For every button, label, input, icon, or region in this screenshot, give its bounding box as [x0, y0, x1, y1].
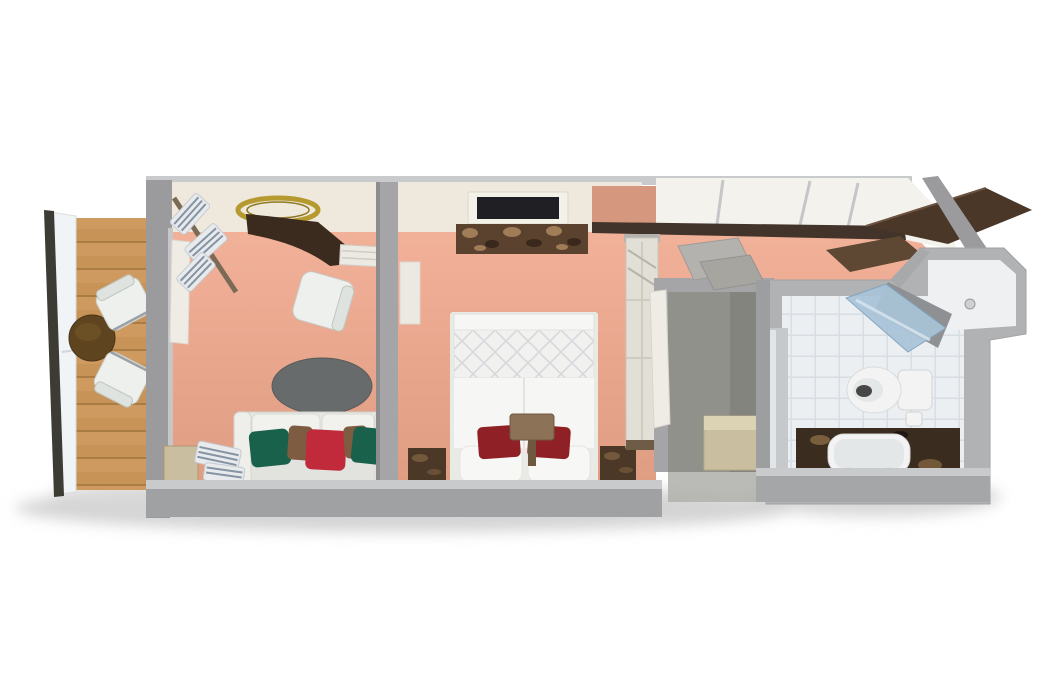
tv-screen: [477, 197, 559, 219]
quilted-duvet: [454, 330, 594, 378]
double-bed: [450, 312, 598, 484]
nightstand-body: [408, 448, 446, 482]
oval-rug: [272, 358, 372, 414]
balcony-table-highlight: [75, 323, 101, 341]
entry-door: [704, 416, 758, 470]
mirror-shine: [770, 330, 776, 468]
marble-streak: [412, 454, 428, 462]
headboard-panel: [510, 414, 554, 440]
wardrobe-base-trim: [626, 440, 658, 450]
duvet-fold: [454, 314, 594, 330]
toilet-tank: [898, 370, 932, 410]
marble-streak: [604, 452, 620, 460]
balcony-door: [170, 240, 190, 344]
sofa: [234, 412, 392, 486]
partition-white-panel: [400, 262, 420, 324]
bathtub-basin: [834, 439, 904, 469]
stone-dresser: [456, 224, 588, 254]
toilet-bowl-hole: [856, 385, 872, 397]
bathroom-south-wall-face: [756, 476, 990, 502]
nightstand-body: [600, 446, 636, 480]
south-wall: [146, 480, 662, 517]
marble-streak: [427, 469, 441, 475]
closet-open-door: [650, 290, 670, 428]
flush-button: [906, 412, 922, 426]
room-balcony: [44, 210, 155, 497]
floorplan-render: [0, 0, 1040, 700]
floorplan-stage: [0, 0, 1040, 700]
pillow-green: [248, 428, 292, 468]
nightstand-left: [408, 448, 446, 482]
marble-streak: [619, 467, 633, 473]
mirror-panel: [768, 328, 788, 470]
entry-door-top: [704, 416, 758, 430]
room-bathroom: [756, 248, 1026, 504]
entry-floor: [668, 472, 756, 502]
headboard-stem: [528, 440, 536, 466]
marble-streak: [810, 435, 830, 445]
nightstand-right: [600, 446, 636, 480]
shower-door-handle: [965, 299, 975, 309]
pillow-red: [305, 429, 347, 471]
partition-edge: [376, 182, 380, 485]
south-wall-face: [146, 489, 662, 517]
